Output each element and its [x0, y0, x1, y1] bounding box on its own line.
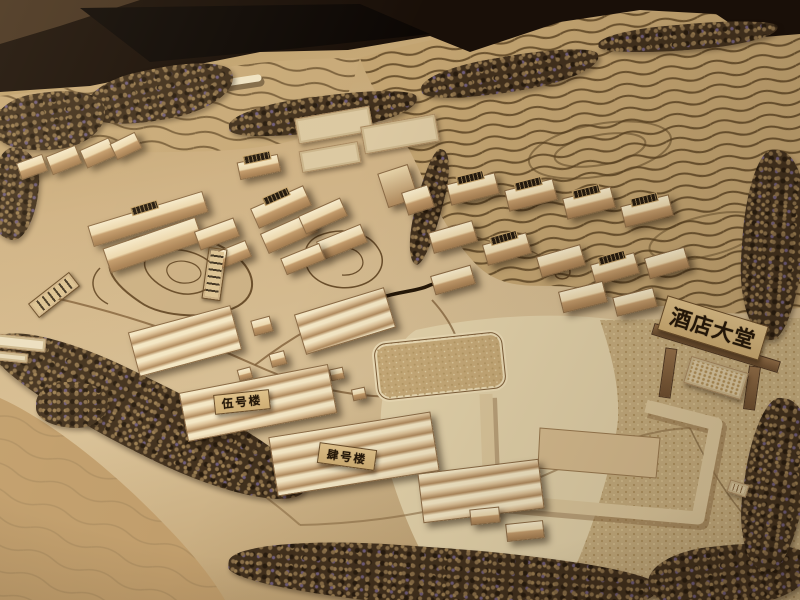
lobby-gate: 酒店大堂: [648, 312, 788, 402]
planted-field: [373, 331, 506, 400]
gate-leg: [659, 347, 678, 398]
small-building: [469, 506, 501, 525]
gate-mesh-panel: [683, 356, 749, 400]
tree-clump-left: [36, 382, 108, 428]
building-no5-sign-text: 伍号楼: [221, 392, 263, 412]
architectural-model-photo: 酒店大堂 伍号楼 肆号楼: [0, 0, 800, 600]
building-no4-sign-text: 肆号楼: [326, 446, 368, 467]
